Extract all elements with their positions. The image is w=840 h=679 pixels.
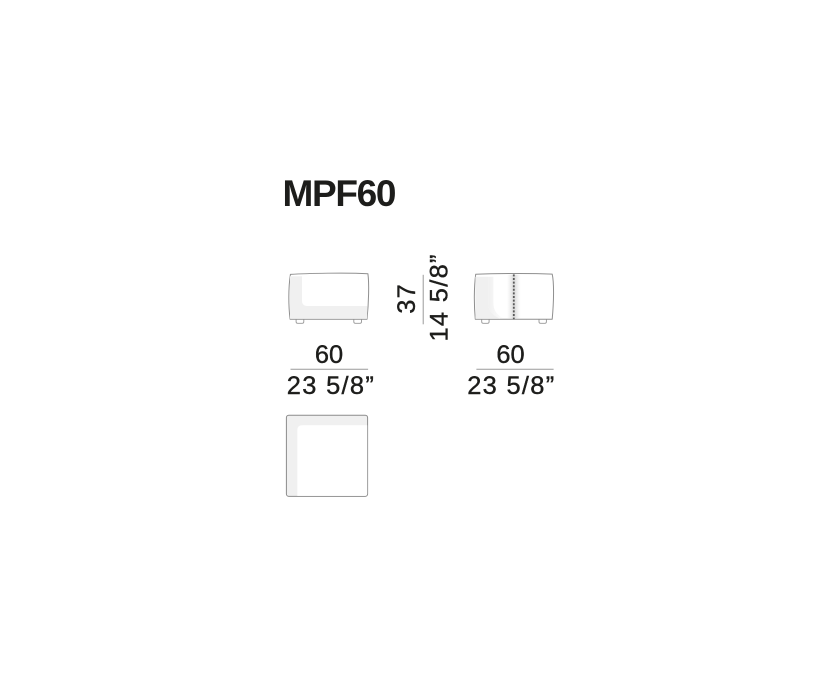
- svg-text:14 5/8”: 14 5/8”: [426, 255, 454, 342]
- svg-text:60: 60: [496, 341, 524, 369]
- svg-text:60: 60: [315, 341, 343, 369]
- svg-text:23 5/8”: 23 5/8”: [287, 372, 374, 400]
- svg-text:23 5/8”: 23 5/8”: [467, 372, 554, 400]
- svg-text:MPF60: MPF60: [283, 173, 397, 214]
- svg-text:37: 37: [393, 284, 421, 314]
